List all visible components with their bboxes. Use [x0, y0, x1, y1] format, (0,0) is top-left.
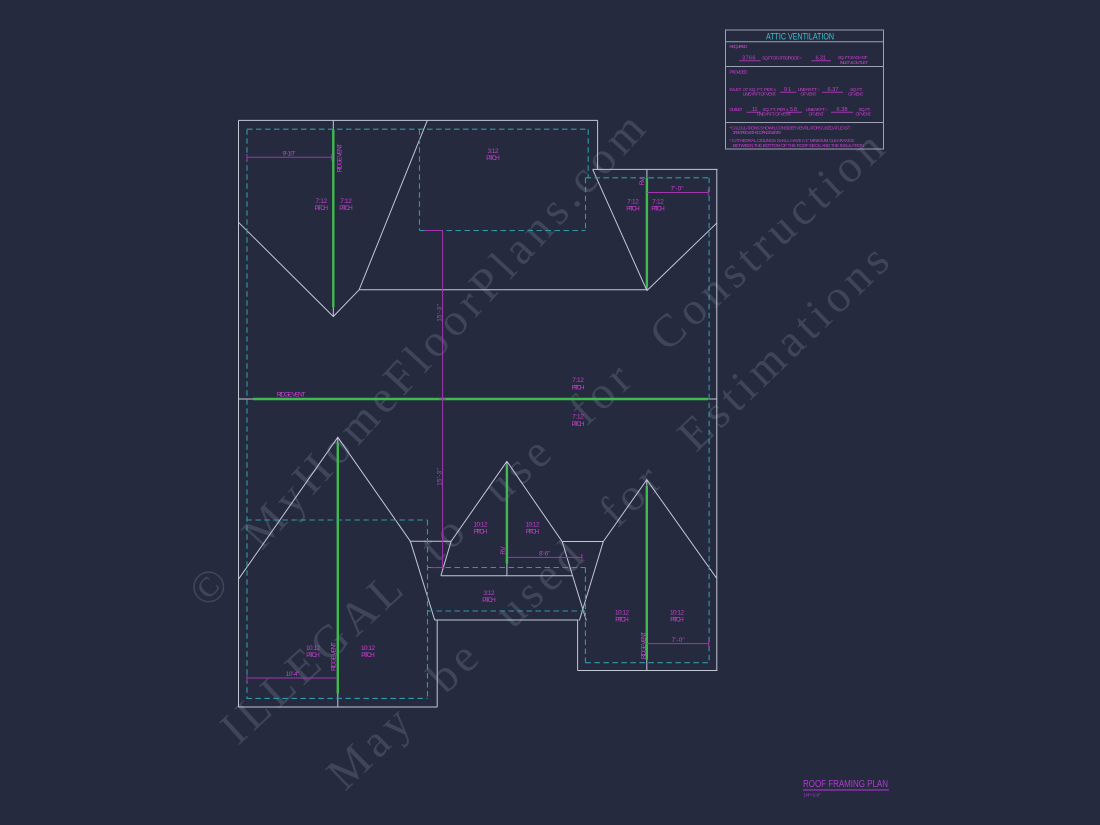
svg-text:OF VENT.: OF VENT. [809, 112, 824, 117]
svg-text:3 FEET ABOVE THE CORNICE VENTS: 3 FEET ABOVE THE CORNICE VENTS [733, 130, 782, 135]
svg-text:10'-4": 10'-4" [286, 671, 300, 678]
svg-text:OF VENT.: OF VENT. [856, 112, 872, 117]
svg-text:OF VENT.: OF VENT. [801, 92, 817, 97]
svg-text:7:12PITCH: 7:12PITCH [572, 377, 585, 391]
svg-text:ROOF FRAMING PLAN: ROOF FRAMING PLAN [803, 779, 888, 790]
svg-text:7:12PITCH: 7:12PITCH [572, 414, 585, 428]
svg-text:10:12PITCH: 10:12PITCH [670, 609, 684, 623]
svg-text:1/4"=1'-0": 1/4"=1'-0" [804, 793, 821, 798]
svg-text:10:12PITCH: 10:12PITCH [526, 522, 540, 536]
svg-text:7:12PITCH: 7:12PITCH [339, 198, 353, 212]
svg-text:BETWEEN THE BOTTOM OF THE ROOF: BETWEEN THE BOTTOM OF THE ROOF DECK AND … [733, 143, 865, 148]
svg-text:10:12PITCH: 10:12PITCH [474, 522, 488, 536]
svg-text:OF VENT.: OF VENT. [848, 92, 864, 97]
svg-text:RIDGE VENT: RIDGE VENT [277, 392, 306, 399]
svg-text:15'-3": 15'-3" [436, 468, 443, 486]
svg-text:7'-0": 7'-0" [672, 637, 685, 644]
svg-text:3:12PITCH: 3:12PITCH [482, 590, 496, 604]
svg-text:8'-6": 8'-6" [539, 551, 550, 558]
svg-text:9'-10": 9'-10" [283, 150, 296, 157]
svg-text:REQUIRED: REQUIRED [729, 44, 748, 49]
svg-text:10:12PITCH: 10:12PITCH [306, 645, 320, 659]
svg-text:7:12PITCH: 7:12PITCH [315, 198, 329, 212]
svg-text:OUTLET: OUTLET [729, 107, 742, 112]
svg-text:SQ FT OF ATTIC/ROOF =: SQ FT OF ATTIC/ROOF = [762, 55, 802, 60]
svg-text:LINEAR FT. OF VENT.: LINEAR FT. OF VENT. [757, 112, 791, 117]
svg-text:May be used for Estimations: May be used for Estimations [317, 231, 903, 799]
svg-text:RIDGE VENT: RIDGE VENT [331, 642, 338, 671]
svg-text:10:12PITCH: 10:12PITCH [361, 645, 375, 659]
svg-text:RIDGE VENT: RIDGE VENT [337, 143, 344, 172]
svg-text:7:12PITCH: 7:12PITCH [651, 198, 665, 212]
svg-text:3:12PITCH: 3:12PITCH [486, 148, 500, 162]
svg-text:RV: RV [500, 546, 507, 555]
svg-text:10:12PITCH: 10:12PITCH [615, 609, 629, 623]
svg-text:RV: RV [639, 177, 646, 185]
svg-text:INLET & OUTLET: INLET & OUTLET [840, 60, 868, 65]
svg-text:ATTIC VENTILATION: ATTIC VENTILATION [766, 32, 834, 43]
svg-text:LINEAR FT. OF VENT.: LINEAR FT. OF VENT. [743, 92, 776, 97]
svg-text:RIDGE VENT: RIDGE VENT [640, 632, 647, 660]
svg-text:15'-3": 15'-3" [436, 304, 443, 322]
svg-text:7:12PITCH: 7:12PITCH [626, 198, 640, 212]
svg-text:7'-0": 7'-0" [671, 186, 684, 193]
svg-text:PROVIDED: PROVIDED [729, 70, 748, 75]
